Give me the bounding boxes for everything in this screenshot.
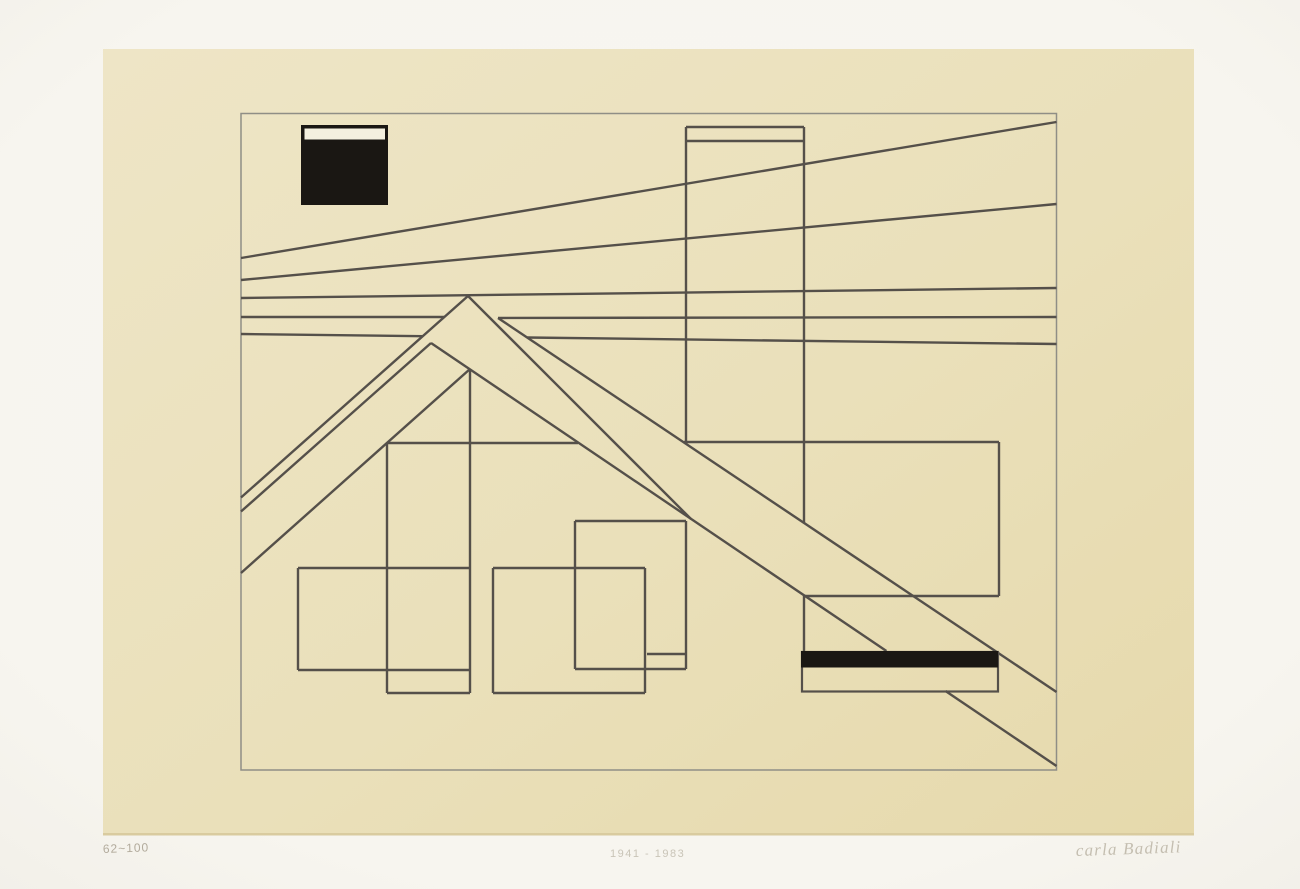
svg-text:62~100: 62~100 (103, 840, 150, 856)
svg-text:1941 - 1983: 1941 - 1983 (610, 848, 685, 860)
svg-text:carla Badiali: carla Badiali (1075, 837, 1181, 860)
